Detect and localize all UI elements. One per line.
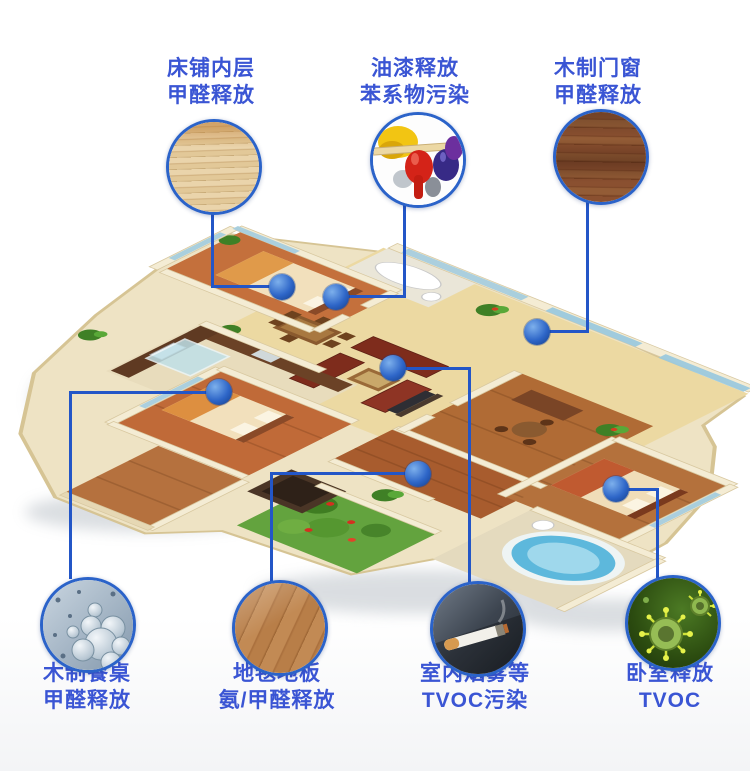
label-paint-release: 油漆释放 苯系物污染 — [310, 55, 520, 109]
molecule-cluster-photo — [43, 580, 133, 670]
wood-floor-photo — [235, 583, 325, 673]
pollution-dot-bedroom — [603, 476, 629, 502]
pollution-dot-bed — [269, 274, 295, 300]
label-line: 苯系物污染 — [310, 82, 520, 109]
callout-circle-carpet — [232, 580, 328, 676]
pollution-dot-floor — [405, 461, 431, 487]
callout-circle-bed — [166, 119, 262, 215]
label-line: 木制门窗 — [493, 55, 703, 82]
callout-circle-wood-door — [553, 109, 649, 205]
callout-circle-smoke — [430, 581, 526, 677]
label-line: TVOC污染 — [370, 687, 580, 714]
label-wood-doors-windows: 木制门窗 甲醛释放 — [493, 55, 703, 109]
label-line: 甲醛释放 — [106, 82, 316, 109]
virus-cells-photo — [628, 578, 718, 668]
label-line: 甲醛释放 — [0, 687, 192, 714]
infographic-canvas: 床铺内层 甲醛释放 油漆释放 苯系物污染 木制门窗 甲醛释放 木制餐桌 甲醛释放… — [0, 0, 750, 771]
pollution-dot-kitchen-table — [206, 379, 232, 405]
pollution-dot-paint — [323, 284, 349, 310]
label-line: 氨/甲醛释放 — [172, 687, 382, 714]
callout-circle-virus — [625, 575, 721, 671]
dark-wood-grain-photo — [556, 112, 646, 202]
paint-cans-photo — [373, 115, 463, 205]
label-line: TVOC — [565, 687, 750, 714]
label-line: 床铺内层 — [106, 55, 316, 82]
bed-slats-photo — [169, 122, 259, 212]
cigarette-smoke-photo — [433, 584, 523, 674]
callout-circle-paint — [370, 112, 466, 208]
label-line: 油漆释放 — [310, 55, 520, 82]
label-bed-inner-layer: 床铺内层 甲醛释放 — [106, 55, 316, 109]
pollution-dot-window — [524, 319, 550, 345]
label-line: 甲醛释放 — [493, 82, 703, 109]
pollution-dot-living-room — [380, 355, 406, 381]
callout-circle-wood-table — [40, 577, 136, 673]
